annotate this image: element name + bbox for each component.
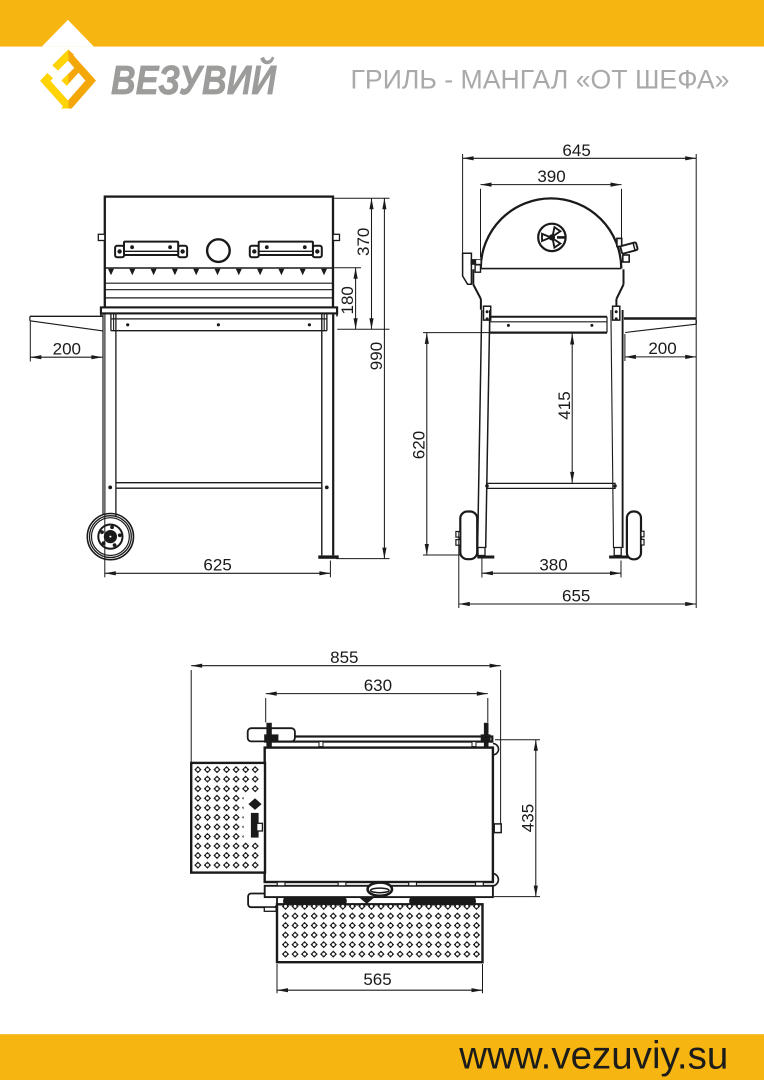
svg-text:ГРИЛЬ - МАНГАЛ «ОТ ШЕФА»: ГРИЛЬ - МАНГАЛ «ОТ ШЕФА»: [351, 65, 730, 95]
svg-text:370: 370: [354, 228, 373, 256]
svg-text:415: 415: [555, 391, 574, 419]
svg-text:380: 380: [539, 556, 567, 575]
svg-text:625: 625: [203, 556, 231, 575]
svg-text:990: 990: [367, 342, 386, 370]
svg-text:390: 390: [537, 167, 565, 186]
svg-text:200: 200: [648, 339, 676, 358]
svg-text:180: 180: [338, 286, 357, 314]
svg-text:655: 655: [562, 586, 590, 605]
svg-text:www.vezuviy.su: www.vezuviy.su: [458, 1034, 728, 1077]
svg-text:645: 645: [562, 141, 590, 160]
svg-text:620: 620: [409, 431, 428, 459]
svg-text:200: 200: [53, 339, 81, 358]
svg-text:565: 565: [363, 970, 391, 989]
svg-text:ВЕЗУВИЙ: ВЕЗУВИЙ: [111, 56, 277, 103]
svg-text:630: 630: [364, 676, 392, 695]
svg-text:435: 435: [518, 804, 537, 832]
svg-text:855: 855: [330, 648, 358, 667]
